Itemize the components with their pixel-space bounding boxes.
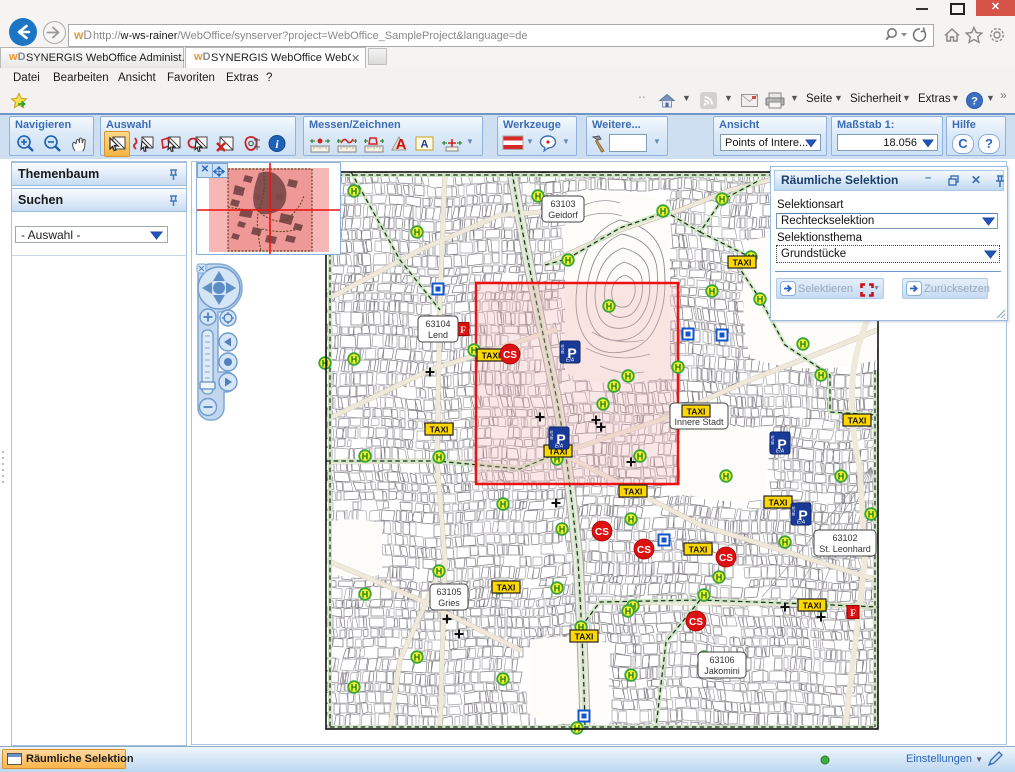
svg-text:?: ? bbox=[971, 96, 978, 108]
svg-text:63102: 63102 bbox=[832, 533, 857, 543]
svg-text:Innere Stadt: Innere Stadt bbox=[674, 417, 724, 427]
svg-text:Jakomini: Jakomini bbox=[704, 666, 740, 676]
svg-text:A: A bbox=[396, 136, 407, 153]
svg-text:St. Leonhard: St. Leonhard bbox=[819, 544, 871, 554]
svg-text:63104: 63104 bbox=[425, 319, 450, 329]
svg-text:63106: 63106 bbox=[709, 655, 734, 665]
svg-text:A: A bbox=[421, 139, 429, 151]
svg-text:Lend: Lend bbox=[428, 330, 448, 340]
svg-text:63103: 63103 bbox=[550, 199, 575, 209]
svg-text:Gries: Gries bbox=[438, 598, 460, 608]
svg-text:Geidorf: Geidorf bbox=[548, 210, 578, 220]
svg-text:63105: 63105 bbox=[436, 587, 461, 597]
